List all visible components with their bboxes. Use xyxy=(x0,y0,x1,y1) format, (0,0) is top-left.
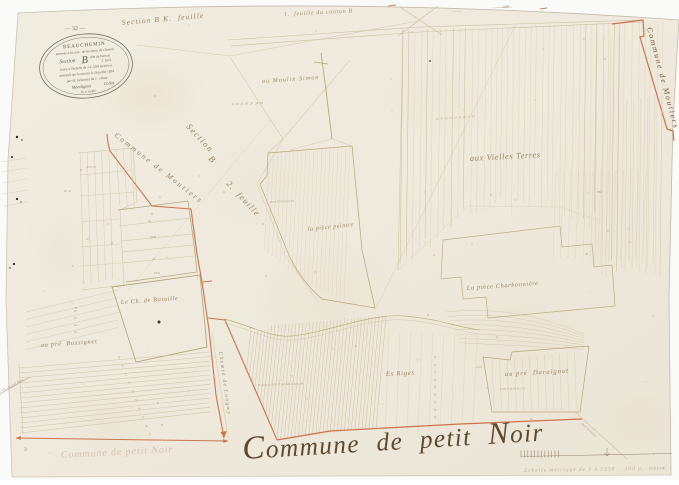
svg-text:1840: 1840 xyxy=(150,235,157,239)
svg-text:Collot: Collot xyxy=(103,80,115,86)
svg-text:1000: 1000 xyxy=(502,5,510,9)
svg-text:24: 24 xyxy=(148,219,152,223)
svg-text:1842: 1842 xyxy=(154,271,161,275)
svg-text:14 15: 14 15 xyxy=(476,366,483,369)
svg-text:30 31 32: 30 31 32 xyxy=(86,166,96,169)
svg-text:3: 3 xyxy=(24,447,27,453)
svg-text:29 29: 29 29 xyxy=(64,190,72,193)
svg-text:— 32 —: — 32 — xyxy=(63,26,86,33)
svg-text:302: 302 xyxy=(597,190,602,194)
